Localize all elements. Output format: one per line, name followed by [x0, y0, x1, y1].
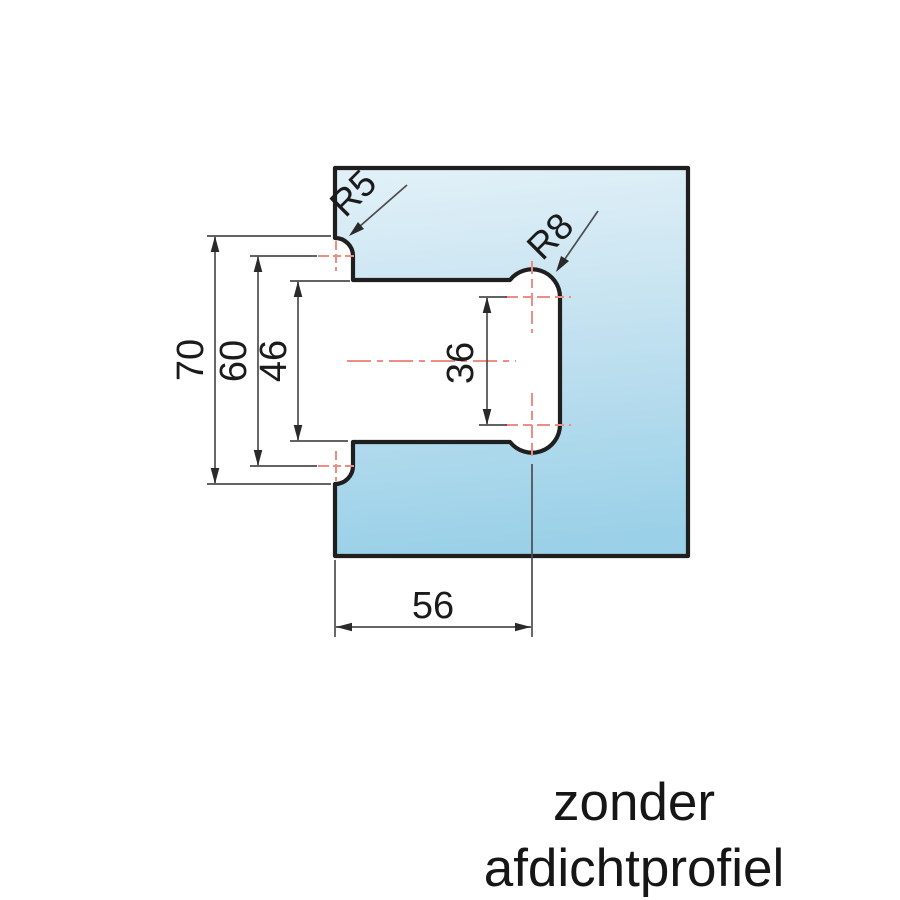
extension-lines — [207, 236, 532, 637]
technical-drawing: 70 60 46 36 56 R5 R8 zonder afdichtprofi… — [0, 0, 900, 900]
caption-line1: zonder — [553, 773, 715, 832]
dim-label-36: 36 — [440, 342, 482, 384]
arrowheads — [211, 222, 569, 631]
arrow-60-bottom — [254, 450, 263, 466]
dim-label-56: 56 — [412, 585, 454, 627]
glass-panel-outline — [335, 168, 688, 556]
caption: zonder afdichtprofiel — [484, 773, 785, 898]
arrow-36-bottom — [483, 409, 492, 425]
arrow-56-right — [515, 623, 531, 632]
dim-label-70: 70 — [170, 339, 212, 381]
arrow-36-top — [483, 297, 492, 313]
arrow-70-top — [211, 236, 220, 252]
dim-label-60: 60 — [213, 340, 255, 382]
drawing-canvas: 70 60 46 36 56 R5 R8 zonder afdichtprofi… — [0, 0, 900, 900]
arrow-70-bottom — [211, 468, 220, 484]
arrow-60-top — [254, 256, 263, 272]
arrow-46-top — [294, 281, 303, 297]
caption-line2: afdichtprofiel — [484, 839, 785, 898]
dim-label-46: 46 — [253, 340, 295, 382]
arrow-46-bottom — [294, 425, 303, 441]
arrow-56-left — [336, 623, 352, 632]
